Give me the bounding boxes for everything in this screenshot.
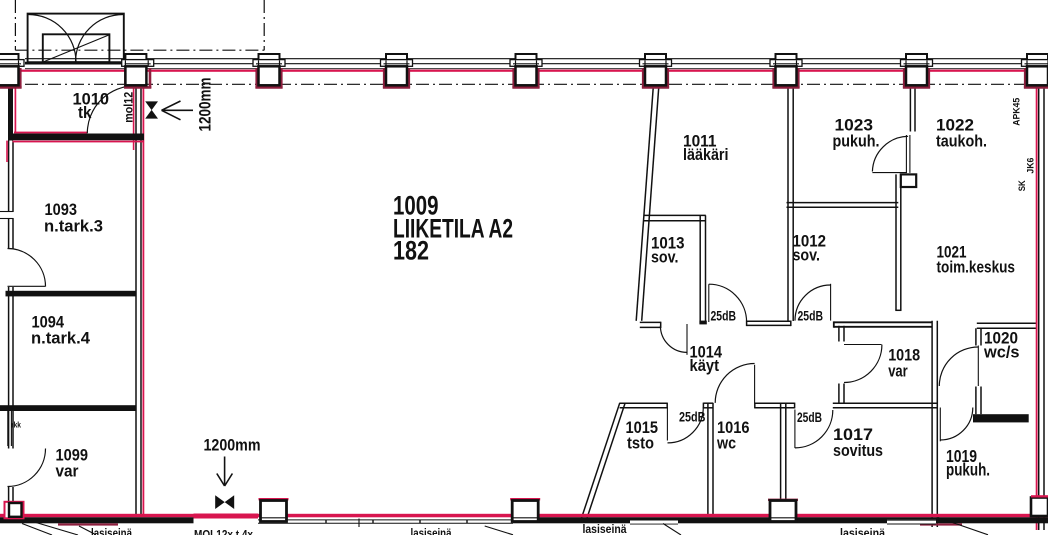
svg-text:MOL12x t.4x: MOL12x t.4x (194, 530, 254, 535)
svg-text:1200mm: 1200mm (204, 436, 261, 455)
svg-text:lääkäri: lääkäri (683, 145, 729, 164)
svg-text:25dB: 25dB (679, 410, 706, 425)
svg-text:pukuh.: pukuh. (833, 131, 880, 150)
svg-text:lasiseinä: lasiseinä (840, 528, 886, 535)
svg-text:n.tark.3: n.tark.3 (44, 217, 103, 236)
svg-text:1200mm: 1200mm (197, 78, 215, 132)
svg-text:wc: wc (716, 434, 736, 453)
svg-text:APK45: APK45 (1012, 97, 1023, 126)
svg-text:n.tark.4: n.tark.4 (31, 329, 91, 348)
svg-text:25dB: 25dB (797, 410, 822, 425)
svg-text:JK6: JK6 (1026, 158, 1037, 174)
svg-text:sov.: sov. (793, 245, 821, 264)
svg-text:rkk: rkk (11, 419, 21, 429)
svg-text:taukoh.: taukoh. (936, 131, 987, 150)
svg-text:var: var (888, 362, 908, 381)
svg-text:SK: SK (1017, 180, 1028, 191)
svg-text:toim.keskus: toim.keskus (937, 258, 1016, 277)
svg-text:mol12: mol12 (124, 92, 136, 123)
svg-text:lasiseinä: lasiseinä (91, 528, 133, 535)
svg-text:sovitus: sovitus (833, 441, 883, 460)
svg-text:pukuh.: pukuh. (946, 459, 990, 479)
svg-text:lasiseinä: lasiseinä (583, 524, 628, 535)
svg-text:182: 182 (393, 236, 429, 266)
svg-text:25dB: 25dB (798, 308, 824, 323)
svg-text:sov.: sov. (651, 247, 679, 266)
svg-text:käyt: käyt (690, 356, 720, 375)
svg-text:wc/s: wc/s (983, 343, 1019, 362)
svg-text:lasiseinä: lasiseinä (411, 528, 453, 535)
svg-text:var: var (56, 462, 79, 481)
svg-text:tk: tk (78, 103, 92, 122)
svg-text:25dB: 25dB (711, 308, 737, 323)
svg-text:tsto: tsto (627, 434, 654, 453)
